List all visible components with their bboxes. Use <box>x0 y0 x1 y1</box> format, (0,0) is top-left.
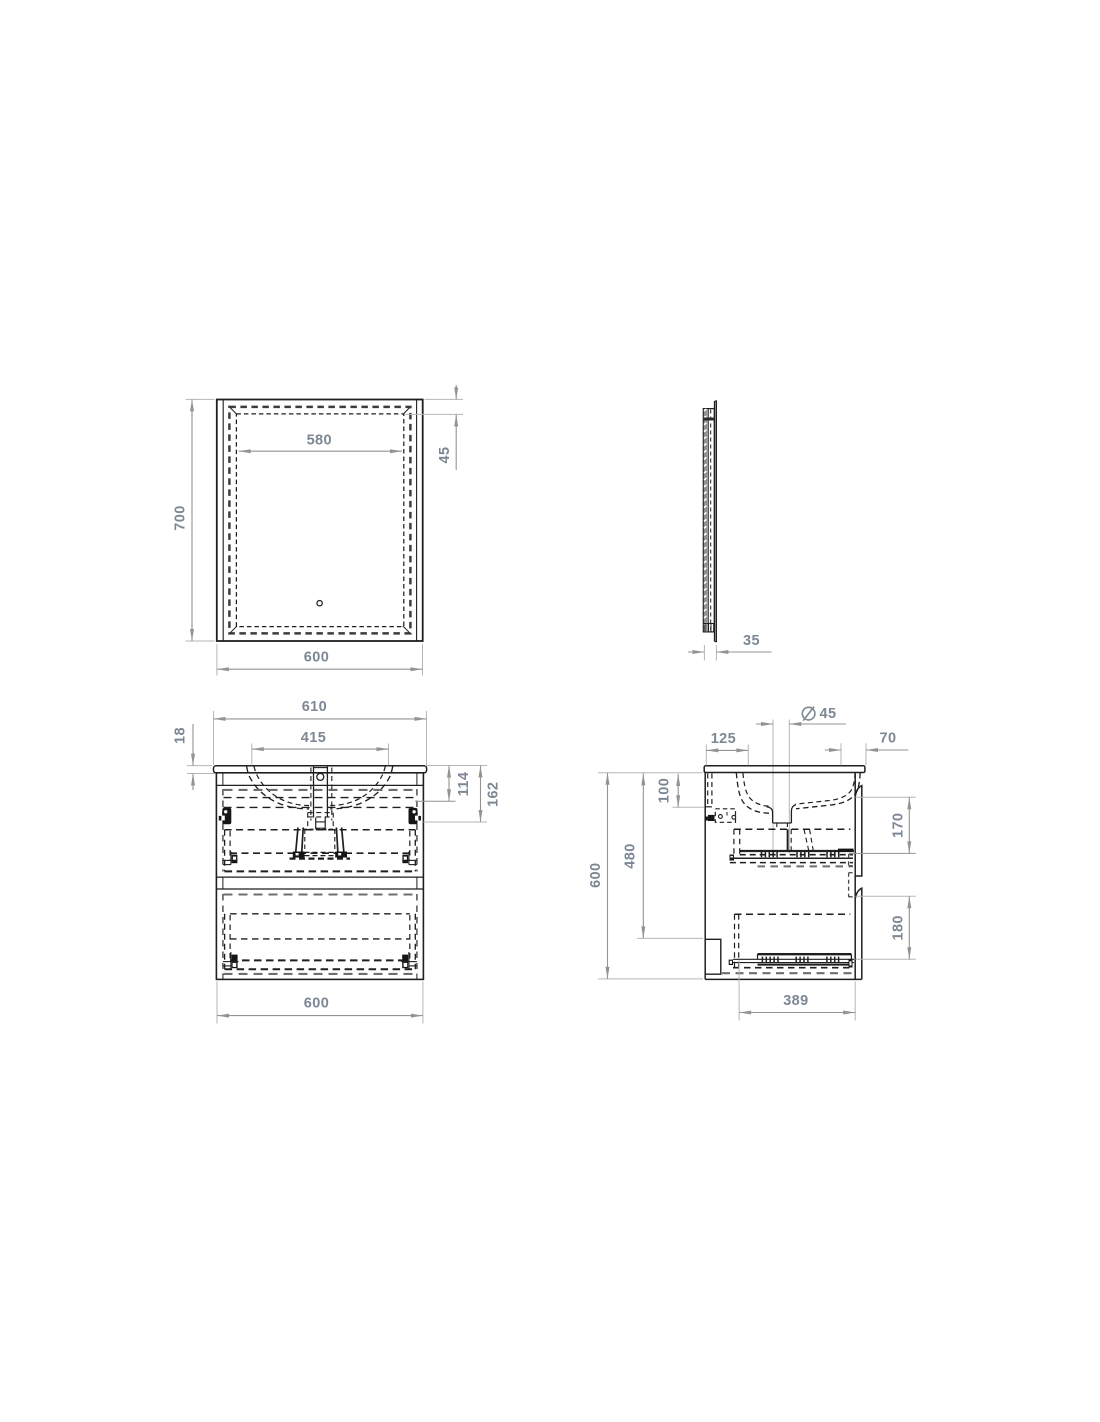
svg-text:70: 70 <box>880 731 897 747</box>
svg-text:389: 389 <box>783 993 808 1009</box>
svg-text:45: 45 <box>437 447 453 464</box>
svg-text:170: 170 <box>890 813 906 838</box>
svg-text:600: 600 <box>304 649 329 665</box>
svg-text:610: 610 <box>302 699 327 715</box>
svg-text:18: 18 <box>172 727 188 744</box>
svg-text:600: 600 <box>588 862 604 887</box>
svg-text:114: 114 <box>456 772 472 797</box>
svg-text:480: 480 <box>622 843 638 868</box>
svg-text:100: 100 <box>657 778 673 803</box>
svg-text:180: 180 <box>890 915 906 940</box>
svg-text:600: 600 <box>304 996 329 1012</box>
svg-text:700: 700 <box>173 505 189 530</box>
svg-text:162: 162 <box>485 782 501 807</box>
svg-text:415: 415 <box>301 730 326 746</box>
svg-text:45: 45 <box>820 706 837 722</box>
svg-text:35: 35 <box>743 633 760 649</box>
svg-text:580: 580 <box>307 432 332 448</box>
svg-text:125: 125 <box>711 731 736 747</box>
